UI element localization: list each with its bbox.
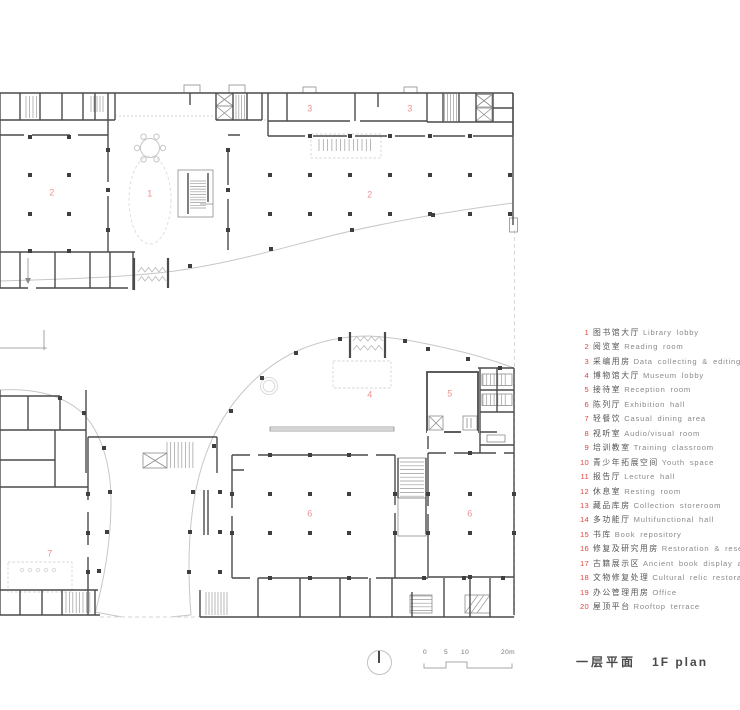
legend-item-name-en: Audio/visual room — [624, 429, 700, 438]
scale-tick: 20m — [501, 649, 515, 656]
room-number-label: 3 — [407, 105, 413, 114]
legend-item-number: 4 — [576, 371, 589, 380]
legend-item-name-zh: 轻餐饮 — [593, 413, 621, 424]
scale-bar: 0 5 10 20m — [415, 645, 525, 675]
legend-item: 8视听室Audio/visual room — [576, 426, 740, 440]
legend-item: 17古籍展示区Ancient book display area — [576, 556, 740, 570]
legend-item: 10青少年拓展空间Youth space — [576, 455, 740, 469]
legend-item-name-zh: 陈列厅 — [593, 399, 621, 410]
legend-item-number: 13 — [576, 501, 589, 510]
legend-item-name-en: Museum lobby — [643, 371, 704, 380]
legend-item-name-zh: 古籍展示区 — [593, 558, 640, 569]
room-number-label: 4 — [367, 391, 373, 400]
legend-item-name-en: Ancient book display area — [643, 559, 740, 568]
title-english: 1F plan — [652, 655, 708, 669]
legend-item-name-en: Rooftop terrace — [634, 602, 700, 611]
legend-item-number: 19 — [576, 588, 589, 597]
legend-item: 20屋顶平台Rooftop terrace — [576, 599, 740, 613]
legend-item: 5接待室Reception room — [576, 383, 740, 397]
room-number-label: 6 — [467, 510, 473, 519]
north-needle — [378, 651, 380, 663]
legend-item: 14多功能厅Multifunctional hall — [576, 513, 740, 527]
legend-item-number: 1 — [576, 328, 589, 337]
legend-item: 9培训教室Training classroom — [576, 441, 740, 455]
legend-item-name-en: Data collecting & editing room — [634, 357, 740, 366]
room-number-label: 2 — [367, 191, 373, 200]
legend-item: 11报告厅Lecture hall — [576, 469, 740, 483]
legend-item-name-zh: 培训教室 — [593, 442, 631, 453]
legend-item: 19办公管理用房Office — [576, 585, 740, 599]
columns — [28, 134, 516, 580]
legend-item: 16修复及研究用房Restoration & research room — [576, 542, 740, 556]
legend-item-name-zh: 藏品库房 — [593, 500, 631, 511]
legend-item-name-en: Resting room — [624, 487, 681, 496]
legend-item-name-zh: 接待室 — [593, 384, 621, 395]
legend-item-name-zh: 视听室 — [593, 428, 621, 439]
thin-walls — [0, 85, 518, 613]
legend-item-name-en: Casual dining area — [624, 414, 706, 423]
scale-tick: 5 — [444, 649, 448, 656]
room-number-label: 2 — [49, 189, 55, 198]
legend-item-name-zh: 文物修复处理 — [593, 572, 649, 583]
legend-item: 6陈列厅Exhibition hall — [576, 397, 740, 411]
legend-item-number: 20 — [576, 602, 589, 611]
legend-item-name-en: Library lobby — [643, 328, 699, 337]
facade-curves — [0, 203, 514, 617]
room-number-label: 7 — [47, 550, 53, 559]
drawing-title: 一层平面 1F plan — [576, 653, 708, 670]
legend-item-name-zh: 办公管理用房 — [593, 587, 649, 598]
legend-item: 12休息室Resting room — [576, 484, 740, 498]
legend-item-name-zh: 博物馆大厅 — [593, 370, 640, 381]
legend-item-name-en: Restoration & research room — [662, 544, 740, 553]
legend-item-name-en: Exhibition hall — [624, 400, 685, 409]
legend-item-number: 11 — [576, 472, 589, 481]
legend-item-number: 8 — [576, 429, 589, 438]
legend-item-number: 17 — [576, 559, 589, 568]
room-number-label: 1 — [147, 190, 153, 199]
scale-tick: 0 — [423, 649, 427, 656]
legend-item-number: 16 — [576, 544, 589, 553]
scale-tick: 10 — [461, 649, 469, 656]
legend-item-name-en: Multifunctional hall — [634, 515, 714, 524]
legend-item-number: 18 — [576, 573, 589, 582]
legend-item-name-zh: 阅览室 — [593, 341, 621, 352]
walls-lower-building — [0, 368, 514, 617]
room-number-label: 3 — [307, 105, 313, 114]
legend-item-name-zh: 修复及研究用房 — [593, 543, 659, 554]
legend-item-name-en: Training classroom — [634, 443, 714, 452]
legend-item-number: 7 — [576, 414, 589, 423]
room-legend: 1图书馆大厅Library lobby2阅览室Reading room3采编用房… — [576, 325, 740, 614]
legend-item-name-en: Cultural relic restoration room — [652, 573, 740, 582]
legend-item: 4博物馆大厅Museum lobby — [576, 368, 740, 382]
legend-item-name-zh: 图书馆大厅 — [593, 327, 640, 338]
legend-item-name-en: Reception room — [624, 385, 691, 394]
legend-item-number: 3 — [576, 357, 589, 366]
legend-item-number: 6 — [576, 400, 589, 409]
legend-item-number: 14 — [576, 515, 589, 524]
legend-item-name-zh: 青少年拓展空间 — [593, 457, 659, 468]
legend-item-name-zh: 屋顶平台 — [593, 601, 631, 612]
legend-item-name-en: Collection storeroom — [634, 501, 722, 510]
legend-item-name-en: Office — [652, 588, 677, 597]
legend-item-name-zh: 书库 — [593, 529, 612, 540]
legend-item-number: 2 — [576, 342, 589, 351]
legend-item-name-zh: 休息室 — [593, 486, 621, 497]
legend-item-number: 9 — [576, 443, 589, 452]
legend-item-name-zh: 多功能厅 — [593, 514, 631, 525]
title-chinese: 一层平面 — [576, 653, 636, 670]
legend-item-name-zh: 报告厅 — [593, 471, 621, 482]
legend-item-name-en: Reading room — [624, 342, 683, 351]
room-number-label: 6 — [307, 510, 313, 519]
legend-item-name-en: Youth space — [662, 458, 714, 467]
legend-item: 13藏品库房Collection storeroom — [576, 498, 740, 512]
legend-item: 15书库Book repository — [576, 527, 740, 541]
legend-item: 1图书馆大厅Library lobby — [576, 325, 740, 339]
legend-item-number: 12 — [576, 487, 589, 496]
furniture — [20, 134, 277, 572]
entrance-arrow-icon — [25, 278, 31, 284]
dashed-lines — [8, 116, 515, 617]
legend-item-number: 5 — [576, 385, 589, 394]
legend-item-name-zh: 采编用房 — [593, 356, 631, 367]
legend-item-number: 10 — [576, 458, 589, 467]
stair-treads — [26, 94, 505, 615]
legend-item-number: 15 — [576, 530, 589, 539]
legend-item: 18文物修复处理Cultural relic restoration room — [576, 570, 740, 584]
walls-upper-building — [0, 93, 513, 290]
legend-item-name-en: Book repository — [615, 530, 682, 539]
legend-item: 2阅览室Reading room — [576, 339, 740, 353]
legend-item: 7轻餐饮Casual dining area — [576, 412, 740, 426]
room-number-label: 5 — [447, 390, 453, 399]
legend-item: 3采编用房Data collecting & editing room — [576, 354, 740, 368]
legend-item-name-en: Lecture hall — [624, 472, 675, 481]
north-arrow-icon — [367, 650, 392, 675]
